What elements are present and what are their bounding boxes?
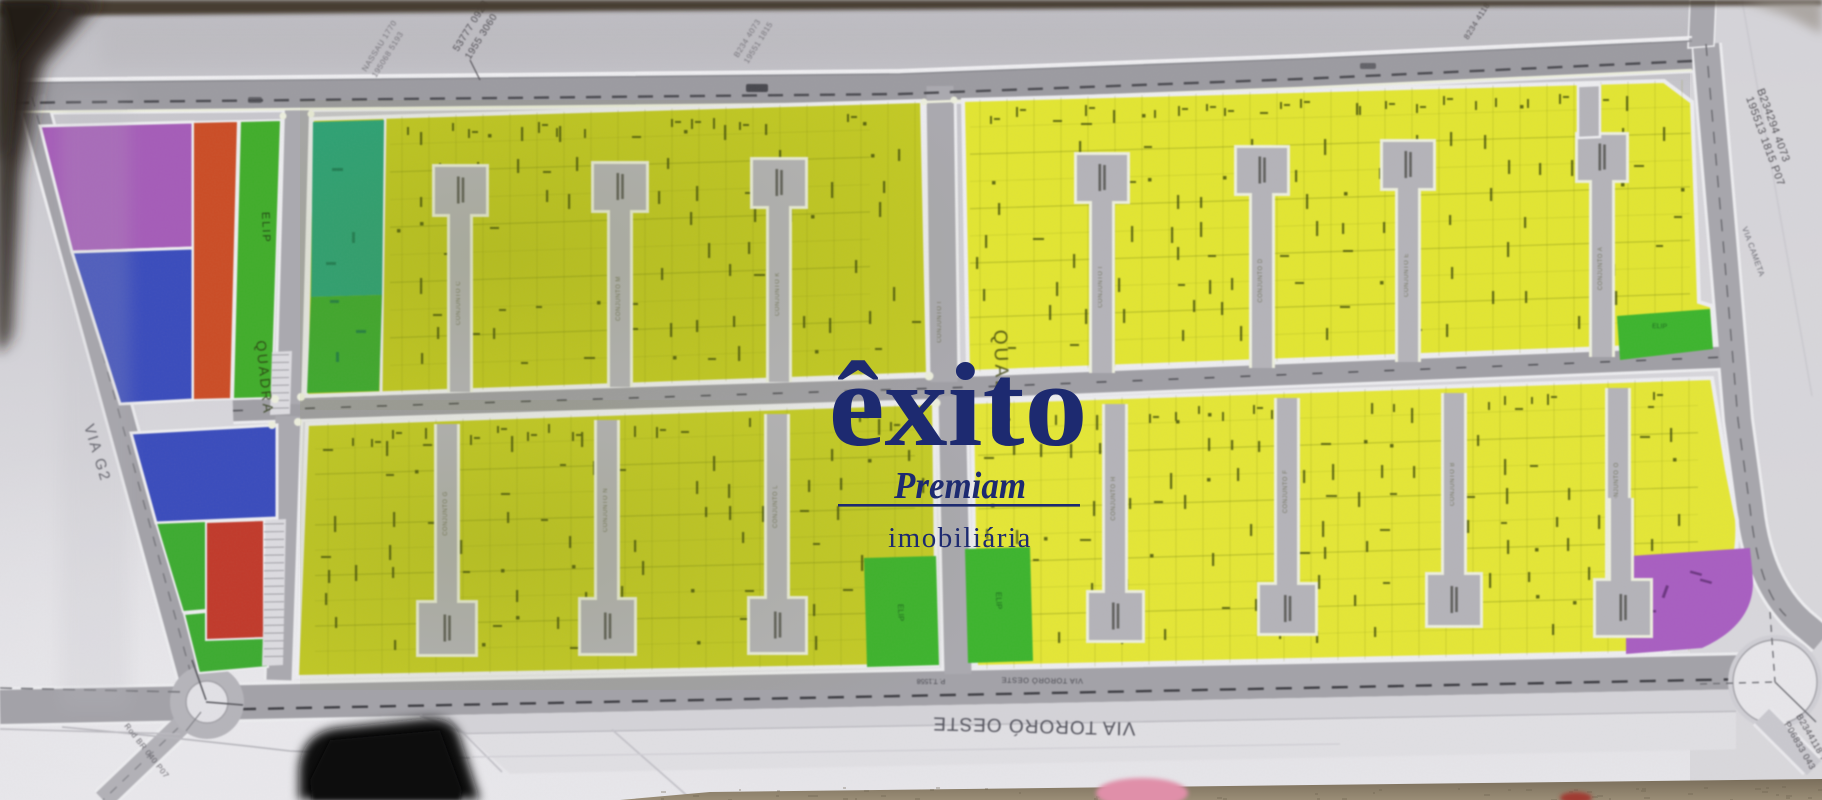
svg-text:Premiam: Premiam	[893, 464, 1026, 507]
svg-text:imobiliária: imobiliária	[888, 522, 1032, 554]
svg-text:êxito: êxito	[829, 338, 1088, 472]
